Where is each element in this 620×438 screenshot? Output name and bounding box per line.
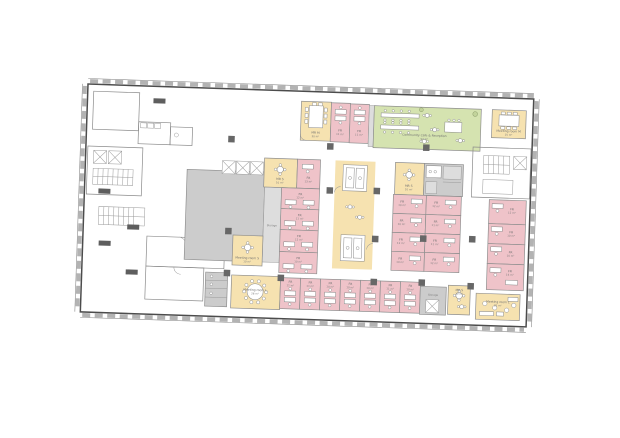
room-cafe: Community Cafe & Reception 92 m²: [373, 106, 481, 152]
room-area: 14 m²: [506, 273, 514, 277]
room-area: 12 m²: [508, 211, 516, 215]
room-fr-left-1: FR 12 m²: [281, 188, 320, 210]
cafe-island: [445, 122, 462, 133]
room-area: 25 m²: [494, 303, 502, 307]
elevator-icon: [222, 161, 235, 174]
room-area: 10 m²: [507, 254, 515, 258]
room-mr-s-bottom: MR S 10 m²: [447, 285, 470, 315]
room-meeting-l-east: Meeting room L 25 m²: [475, 293, 520, 320]
collab-strip: [332, 160, 376, 269]
room-area: 11 m²: [336, 132, 344, 136]
room-area: 10 m²: [276, 180, 284, 184]
focus-booth: [340, 235, 365, 262]
room-fr-left-4: FR 10 m²: [279, 252, 318, 274]
room-label: MR M: [311, 131, 320, 135]
wc-strip: [205, 272, 228, 307]
room-fr-center-2: FR 12 m²: [426, 195, 462, 215]
room-fr-center-6: FR 11 m²: [425, 233, 461, 253]
room-area: 11 m²: [432, 223, 440, 227]
coffee-table: [496, 312, 503, 316]
elevator-icon: [236, 161, 249, 174]
room-area: 10 m²: [455, 291, 463, 295]
wc-block-center: [423, 163, 463, 196]
room-area: 15 m²: [505, 133, 513, 137]
room-area: 10 m²: [405, 187, 413, 191]
elevator-icon: [108, 151, 121, 164]
room-fr-bottom-6: FR 11 m²: [379, 281, 400, 313]
meeting-table: [309, 105, 324, 127]
room-fr-top-2: FR 11 m²: [349, 104, 369, 144]
room-meeting-l-west: Meeting room L 28 m²: [231, 275, 281, 310]
room-fr-top-1: FR 11 m²: [330, 103, 350, 143]
room-area: 10 m²: [507, 234, 515, 238]
room-fr-center-3: FR 10 m²: [392, 213, 426, 233]
room-fr-upper-left: FR 13 m²: [297, 159, 321, 189]
room-fr-center-4: FR 11 m²: [425, 214, 461, 234]
room-area: 12 m²: [296, 195, 304, 199]
room-label: FR: [338, 128, 342, 132]
room-area: 11 m²: [431, 242, 439, 246]
room-area: 12 m²: [430, 261, 438, 265]
room-fr-bottom-7: FR 10 m²: [399, 282, 420, 314]
room-mr-s-center: MR S 10 m²: [394, 162, 424, 195]
room-fr-left-3: FR 12 m²: [279, 230, 318, 253]
room-fr-right-1: FR 12 m²: [489, 200, 527, 225]
focus-booth: [343, 165, 368, 192]
room-label: Storage: [428, 293, 439, 297]
west-stair: [93, 168, 134, 185]
room-fr-right-2: FR 10 m²: [488, 224, 526, 245]
room-area: 10 m²: [396, 260, 404, 264]
room-fr-center-7: FR 10 m²: [391, 251, 425, 271]
room-area: 12 m²: [295, 237, 303, 241]
room-area: 10 m²: [294, 259, 302, 263]
room-area: 11 m²: [306, 284, 314, 288]
room-area: 10 m²: [326, 285, 334, 289]
plant: [419, 108, 423, 112]
room-area: 11 m²: [386, 287, 394, 291]
room-fr-right-4: FR 14 m²: [486, 264, 524, 291]
room-mr-m-top: MR M 30 m²: [300, 101, 331, 141]
room-area: 13 m²: [304, 179, 312, 183]
elevator-icon: [93, 150, 106, 163]
room-fr-bottom-1: FR 11 m²: [280, 278, 301, 310]
floor-plan-svg: Storage MR M 30 m²: [0, 0, 620, 438]
meeting-table: [499, 115, 519, 127]
room-area: 92 m²: [420, 137, 428, 141]
room-fr-center-1: FR 10 m²: [393, 194, 427, 214]
room-label: FR: [357, 129, 361, 133]
room-label: FR: [306, 176, 310, 180]
room-area: 10 m²: [346, 285, 354, 289]
room-area: 30 m²: [311, 134, 319, 138]
elevator-icon: [513, 156, 526, 169]
room-fr-bottom-2: FR 11 m²: [300, 278, 321, 310]
room-area: 11 m²: [355, 133, 363, 137]
room-storage-bottom: Storage: [419, 286, 446, 315]
sofa: [479, 311, 493, 315]
room-area: 10 m²: [406, 287, 414, 291]
room-mr-s-upper-left: MR S 10 m²: [264, 158, 298, 188]
room-fr-center-8: FR 12 m²: [424, 252, 460, 272]
floor-plan-canvas: Storage MR M 30 m²: [0, 0, 620, 438]
room-area: 11 m²: [286, 283, 294, 287]
building: Storage MR M 30 m²: [75, 78, 540, 332]
plant: [473, 112, 478, 117]
room-fr-right-3: FR 10 m²: [487, 244, 525, 265]
elevator-icon: [425, 300, 438, 313]
east-stair: [483, 155, 510, 174]
room-area: 12 m²: [432, 204, 440, 208]
room-fr-bottom-4: FR 10 m²: [340, 280, 361, 312]
room-area: 28 m²: [251, 291, 259, 295]
room-meeting-m: Meeting room M 15 m²: [491, 110, 526, 139]
room-area: 10 m²: [243, 259, 251, 263]
room-fr-left-2: FR 11 m²: [280, 209, 319, 231]
room-label: Storage: [267, 223, 278, 227]
room-fr-bottom-3: FR 10 m²: [320, 279, 341, 311]
room-area: 11 m²: [296, 216, 304, 220]
room-meeting-s: Meeting room S 10 m²: [232, 235, 263, 266]
elevator-icon: [250, 162, 263, 175]
room-area: 10 m²: [398, 203, 406, 207]
room-area: 10 m²: [398, 222, 406, 226]
room-area: 10 m²: [366, 286, 374, 290]
room-area: 12 m²: [397, 241, 405, 245]
south-west-stair: [98, 206, 145, 226]
room-fr-bottom-5: FR 10 m²: [359, 280, 380, 312]
